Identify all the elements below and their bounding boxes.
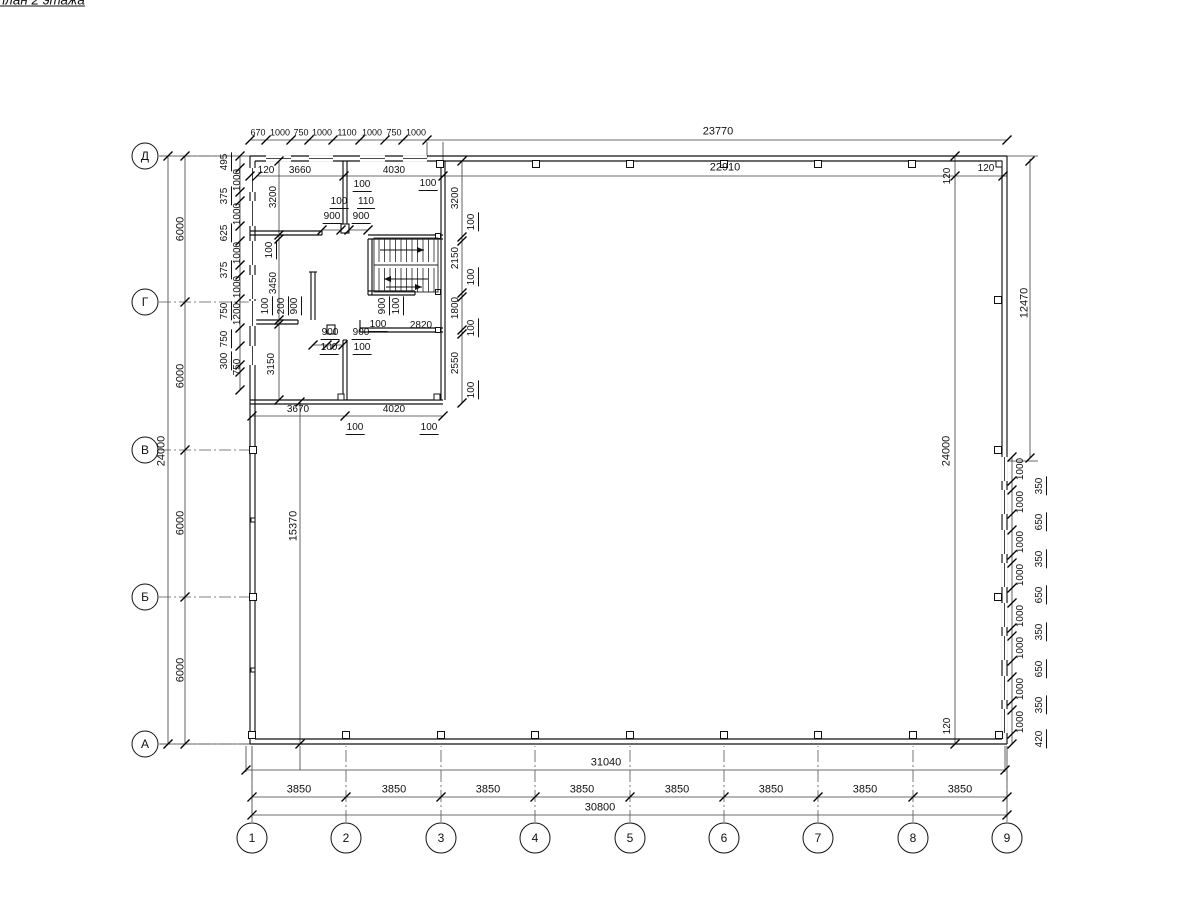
dim-label: 3850 bbox=[476, 785, 500, 796]
dim-label: 650 bbox=[1035, 513, 1047, 532]
svg-text:Г: Г bbox=[142, 295, 149, 309]
dim-label: 900 bbox=[352, 212, 371, 224]
dim-label: 375 bbox=[220, 187, 232, 206]
dim-label: 3660 bbox=[289, 166, 311, 176]
svg-text:9: 9 bbox=[1004, 831, 1011, 845]
svg-text:6: 6 bbox=[721, 831, 728, 845]
dim-label: 1000 bbox=[270, 129, 290, 138]
dim-label: 31040 bbox=[591, 758, 622, 769]
dim-label: 900 bbox=[321, 328, 340, 340]
svg-text:В: В bbox=[141, 443, 149, 457]
dim-label: 3850 bbox=[570, 785, 594, 796]
dim-label: 100 bbox=[467, 319, 479, 338]
dim-label: 650 bbox=[1035, 660, 1047, 679]
dim-label: 900 bbox=[323, 212, 342, 224]
dim-label: 900 bbox=[378, 297, 390, 316]
drawing-title: Монтажный план 2 этажа bbox=[0, 0, 85, 8]
dim-label: 2820 bbox=[410, 321, 432, 331]
dim-label: 2150 bbox=[451, 247, 461, 269]
dim-label: 100 bbox=[261, 297, 273, 316]
dim-label: 350 bbox=[1035, 696, 1047, 715]
dim-label: 3670 bbox=[287, 405, 309, 415]
dim-label: 1000 bbox=[406, 129, 426, 138]
dim-label: 3850 bbox=[287, 785, 311, 796]
dim-label: 6000 bbox=[176, 217, 187, 241]
dim-label: 4030 bbox=[383, 166, 405, 176]
dim-label: 120 bbox=[943, 718, 953, 735]
dim-label: 30800 bbox=[585, 803, 616, 814]
axis-col-marker: 4 bbox=[520, 823, 550, 853]
svg-text:7: 7 bbox=[815, 831, 822, 845]
dim-label: 100 bbox=[369, 320, 388, 332]
dim-label: 100 bbox=[320, 343, 339, 355]
dim-label: 3150 bbox=[267, 353, 277, 375]
dim-label: 6000 bbox=[176, 658, 187, 682]
dim-label: 100 bbox=[265, 241, 277, 260]
axis-row-marker: Г bbox=[132, 289, 158, 315]
dim-label: 375 bbox=[220, 261, 232, 280]
dim-label: 750 bbox=[233, 359, 243, 376]
dim-label: 22910 bbox=[710, 163, 741, 174]
axis-col-marker: 3 bbox=[426, 823, 456, 853]
dim-label: 1000 bbox=[362, 129, 382, 138]
axis-col-marker: 7 bbox=[803, 823, 833, 853]
axis-col-marker: 6 bbox=[709, 823, 739, 853]
dim-label: 495 bbox=[220, 153, 232, 172]
dim-label: 100 bbox=[353, 180, 372, 192]
dim-label: 1000 bbox=[1016, 605, 1026, 627]
dim-label: 120 bbox=[943, 168, 953, 185]
axis-col-marker: 9 bbox=[992, 823, 1022, 853]
svg-text:А: А bbox=[141, 737, 149, 751]
dim-label: 1000 bbox=[1016, 564, 1026, 586]
svg-text:8: 8 bbox=[910, 831, 917, 845]
axis-col-marker: 5 bbox=[615, 823, 645, 853]
dim-label: 100 bbox=[353, 343, 372, 355]
dim-label: 100 bbox=[420, 423, 439, 435]
axis-row-marker: Б bbox=[132, 584, 158, 610]
dim-label: 1000 bbox=[233, 276, 243, 298]
dim-label: 670 bbox=[250, 129, 265, 138]
dim-label: 750 bbox=[220, 330, 232, 349]
svg-text:4: 4 bbox=[532, 831, 539, 845]
dim-label: 4020 bbox=[383, 405, 405, 415]
dim-label: 12470 bbox=[1020, 288, 1031, 319]
floor-plan: ДГВБА123456789 Монтажный план 2 этажа 67… bbox=[0, 0, 1200, 900]
dim-label: 1000 bbox=[312, 129, 332, 138]
dim-label: 3200 bbox=[269, 186, 279, 208]
dim-label: 6000 bbox=[176, 511, 187, 535]
svg-text:2: 2 bbox=[343, 831, 350, 845]
dim-label: 1000 bbox=[233, 169, 243, 191]
svg-text:Б: Б bbox=[141, 590, 149, 604]
svg-text:3: 3 bbox=[438, 831, 445, 845]
dim-label: 100 bbox=[419, 179, 438, 191]
dim-label: 1000 bbox=[1016, 531, 1026, 553]
dim-label: 6000 bbox=[176, 364, 187, 388]
svg-text:5: 5 bbox=[627, 831, 634, 845]
dim-label: 625 bbox=[220, 224, 232, 243]
dim-label: 3850 bbox=[759, 785, 783, 796]
axis-row-marker: Д bbox=[132, 143, 158, 169]
dim-label: 3850 bbox=[665, 785, 689, 796]
dim-label: 120 bbox=[978, 164, 995, 174]
dim-label: 1000 bbox=[1016, 711, 1026, 733]
dim-label: 900 bbox=[352, 328, 371, 340]
dim-label: 3450 bbox=[269, 272, 279, 294]
dim-label: 1800 bbox=[451, 297, 461, 319]
dim-label: 3850 bbox=[948, 785, 972, 796]
axis-row-marker: В bbox=[132, 437, 158, 463]
dim-label: 1000 bbox=[233, 203, 243, 225]
dim-label: 1000 bbox=[233, 242, 243, 264]
dim-label: 23770 bbox=[703, 127, 734, 138]
axis-col-marker: 2 bbox=[331, 823, 361, 853]
axis-col-marker: 1 bbox=[237, 823, 267, 853]
dim-label: 3850 bbox=[853, 785, 877, 796]
dim-label: 2550 bbox=[451, 352, 461, 374]
svg-text:1: 1 bbox=[249, 831, 256, 845]
dim-label: 100 bbox=[467, 381, 479, 400]
dim-label: 750 bbox=[386, 129, 401, 138]
dim-label: 750 bbox=[293, 129, 308, 138]
dim-label: 100 bbox=[467, 268, 479, 287]
dim-label: 100 bbox=[467, 213, 479, 232]
dim-label: 1000 bbox=[1016, 678, 1026, 700]
dim-label: 15370 bbox=[289, 511, 300, 542]
dim-label: 1100 bbox=[337, 129, 356, 138]
dim-label: 1200 bbox=[233, 303, 243, 325]
svg-text:Д: Д bbox=[141, 149, 149, 163]
dim-label: 900 bbox=[290, 297, 302, 316]
dim-label: 100 bbox=[392, 297, 404, 316]
dim-label: 3200 bbox=[451, 187, 461, 209]
dim-label: 650 bbox=[1035, 586, 1047, 605]
dim-label: 750 bbox=[220, 302, 232, 321]
dim-label: 100 bbox=[330, 197, 349, 209]
axis-col-marker: 8 bbox=[898, 823, 928, 853]
axis-row-marker: А bbox=[132, 731, 158, 757]
dim-label: 24000 bbox=[942, 436, 953, 467]
dim-label: 100 bbox=[346, 423, 365, 435]
dim-label: 3850 bbox=[382, 785, 406, 796]
dim-label: 350 bbox=[1035, 550, 1047, 569]
dim-label: 200 bbox=[277, 297, 289, 316]
dim-label: 120 bbox=[258, 166, 275, 176]
dim-label: 1000 bbox=[1016, 637, 1026, 659]
dim-label: 110 bbox=[357, 197, 375, 209]
dim-label: 420 bbox=[1035, 730, 1047, 749]
dim-label: 300 bbox=[220, 352, 232, 371]
dim-label: 350 bbox=[1035, 623, 1047, 642]
dim-label: 1000 bbox=[1016, 491, 1026, 513]
dim-label: 24000 bbox=[157, 436, 168, 467]
dim-label: 1000 bbox=[1016, 458, 1026, 480]
dim-label: 350 bbox=[1035, 477, 1047, 496]
